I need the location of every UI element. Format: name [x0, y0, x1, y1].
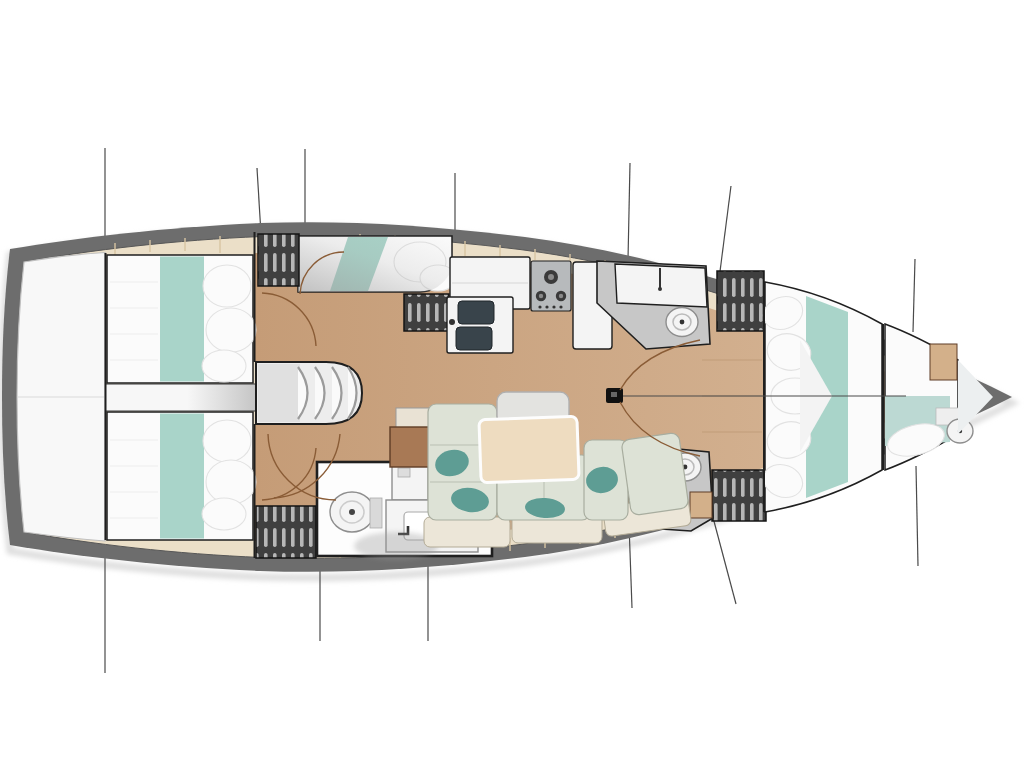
settee-backrest [424, 517, 510, 547]
galley-sink [458, 301, 494, 324]
teal-bedspread-stripe [160, 414, 204, 539]
hanging-locker [258, 234, 299, 286]
head-shelf [690, 492, 712, 518]
salon-table [479, 416, 579, 482]
hanging-locker [717, 271, 764, 331]
bow-cabin [884, 324, 993, 470]
forward-cabin [759, 282, 883, 512]
rigging-line [916, 466, 918, 566]
engine-space-wedge [105, 384, 255, 411]
bow-cabinet [930, 344, 957, 380]
aft-cabin-port [107, 255, 256, 383]
rigging-line [913, 259, 915, 332]
pillow [202, 350, 246, 382]
hanging-locker [712, 470, 766, 521]
aft-cabin-starboard [107, 412, 256, 540]
midship-berth [298, 236, 456, 292]
galley-sink [456, 327, 492, 350]
pillow [203, 265, 251, 307]
pillow [203, 420, 251, 462]
rigging-line [628, 163, 630, 260]
hanging-locker [404, 294, 449, 331]
boat-floor-plan [0, 0, 1024, 768]
galley-faucet [449, 319, 455, 325]
boat-floor-plan-page [0, 0, 1024, 768]
galley-stove [531, 261, 571, 311]
pillow [202, 498, 246, 530]
companionway-steps [256, 362, 362, 424]
pillow [206, 308, 256, 352]
settee-cushion [621, 432, 689, 515]
rigging-line [711, 510, 736, 604]
companionway-landing [258, 364, 300, 422]
berth-shadow [298, 236, 452, 292]
teal-bedspread-stripe [160, 257, 204, 382]
pillow [206, 460, 256, 504]
hanging-locker [256, 506, 316, 558]
